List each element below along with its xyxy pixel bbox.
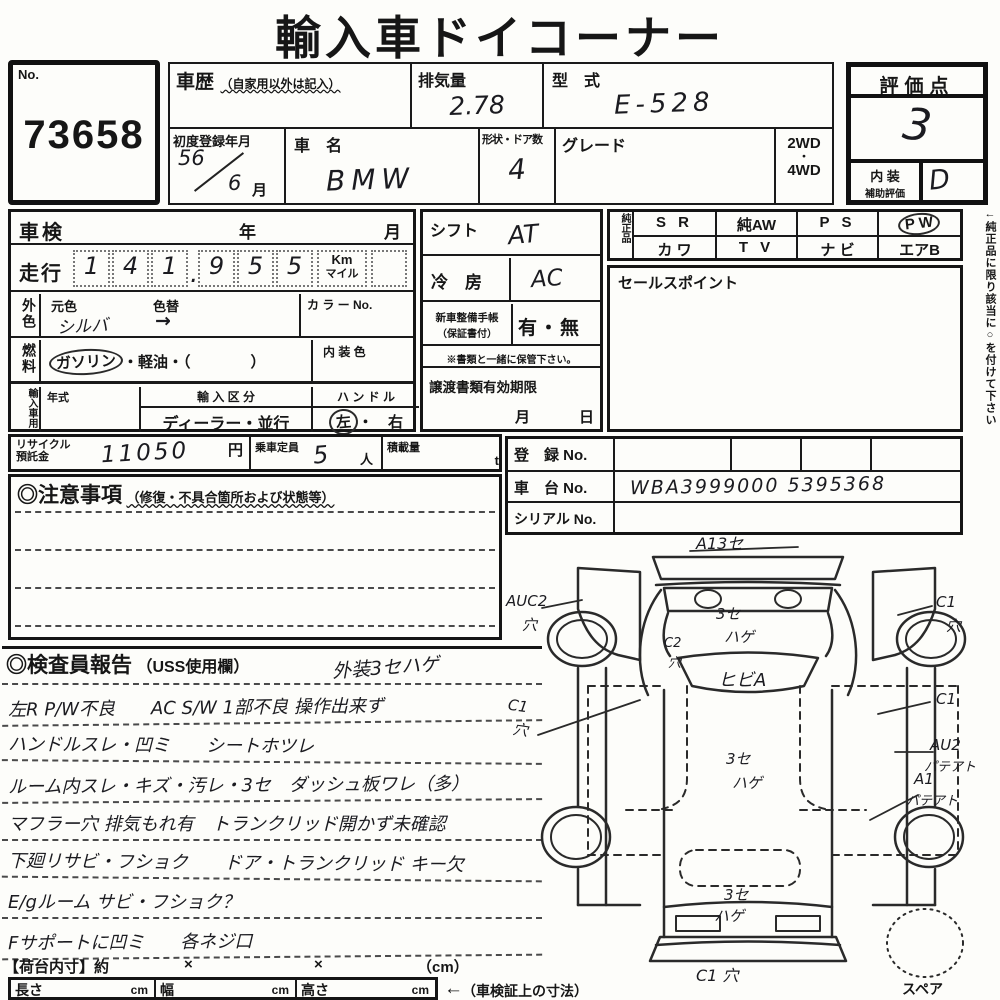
original-color-value: シルバ bbox=[56, 311, 108, 339]
chassis-no-label: 車 台 No. bbox=[514, 477, 587, 498]
spare-tire-circle bbox=[887, 909, 963, 977]
interior-rating-label: 内 装 補助評価 bbox=[851, 163, 923, 200]
displacement-value: 2.78 bbox=[412, 89, 543, 123]
page-title: 輸入車ドイコーナー bbox=[0, 2, 1000, 68]
color-no-divider bbox=[299, 294, 301, 336]
length-unit: cm bbox=[131, 983, 148, 997]
diagram-note: 3セ bbox=[716, 603, 741, 624]
diagram-note: C1 bbox=[936, 593, 956, 611]
chassis-no-value: WBA3999000 5395368 bbox=[630, 473, 886, 499]
lot-number-box: No. 73658 bbox=[8, 60, 160, 205]
exterior-color-side-label: 外色 bbox=[11, 294, 41, 336]
fuel-options: ガソリン・軽油・（ ） bbox=[49, 349, 266, 375]
auction-sheet: 輸入車ドイコーナー No. 73658 車歴 （自家用以外は記入） 排気量 2.… bbox=[0, 0, 1000, 1000]
diagram-note: 穴 bbox=[668, 652, 681, 671]
displacement-cell: 排気量 2.78 bbox=[410, 62, 544, 129]
part-pw: P W bbox=[877, 212, 960, 235]
mileage-label: 走行 bbox=[19, 257, 63, 286]
transfer-docs-row: 譲渡書類有効期限 月 日 bbox=[423, 370, 600, 432]
shaken-month-label: 月 bbox=[384, 218, 401, 243]
registration-label-divider bbox=[613, 439, 615, 470]
registration-no-label: 登 録 No. bbox=[514, 444, 587, 465]
ac-row: 冷 房 AC bbox=[423, 258, 600, 302]
cargo-dimensions-line: 【荷台内寸】約 × × （cm） bbox=[2, 956, 472, 976]
shift-value: AT bbox=[507, 219, 540, 251]
lot-number-value: 73658 bbox=[13, 113, 155, 158]
shift-label: シフト bbox=[430, 217, 478, 241]
report-subtitle: （USS使用欄） bbox=[136, 659, 249, 676]
recycle-row: リサイクル 預託金 11050 円 乗車定員 5 人 積載量 t bbox=[8, 434, 502, 472]
interior-rating-value: D bbox=[928, 160, 985, 196]
history-note: （自家用以外は記入） bbox=[220, 77, 340, 91]
rear-window bbox=[680, 850, 800, 886]
cautions-subtitle: （修復・不具合箇所および状態等） bbox=[126, 490, 334, 505]
diagram-note: ハゲ bbox=[732, 772, 762, 793]
mileage-digit: 1 bbox=[73, 250, 110, 287]
handle-left-selected: 左 bbox=[328, 408, 359, 436]
make-cell: 車 名 BMW bbox=[284, 127, 480, 205]
first-reg-month-unit: 月 bbox=[252, 179, 267, 200]
first-reg-year: 56 bbox=[178, 146, 205, 170]
front-bumper bbox=[653, 557, 843, 579]
interior-color-divider bbox=[311, 340, 313, 381]
displacement-label: 排気量 bbox=[418, 67, 542, 91]
color-change-value: → bbox=[155, 310, 171, 332]
unit-mile-label: マイル bbox=[319, 268, 365, 280]
service-book-row: 新車整備手帳 （保証書付） 有・無 bbox=[423, 304, 600, 346]
part-ps: P S bbox=[796, 212, 877, 235]
caution-line bbox=[15, 625, 495, 627]
shift-row: シフト AT bbox=[423, 212, 600, 256]
cargo-times-2: × bbox=[314, 956, 323, 973]
interior-rating-row: 内 装 補助評価 D bbox=[851, 159, 983, 200]
report-line: 左R P/W不良 AC S/W 1部不良 操作出来ず bbox=[2, 682, 542, 727]
report-exterior-note: 外装3セハゲ bbox=[331, 649, 440, 683]
part-sr: S R bbox=[634, 212, 715, 235]
registration-divider-3 bbox=[870, 439, 872, 470]
report-line: Fサポートに凹ミ 各ネジ口 bbox=[2, 917, 542, 961]
make-label: 車 名 bbox=[294, 132, 478, 156]
chassis-label-divider bbox=[613, 472, 615, 501]
header-table: 車歴 （自家用以外は記入） 排気量 2.78 型 式 E-528 初度登録年月 … bbox=[168, 62, 834, 205]
transfer-day-label: 日 bbox=[579, 406, 594, 427]
caution-line bbox=[15, 587, 495, 589]
model-value: E-528 bbox=[614, 83, 833, 121]
handle-right-option: ・ 右 bbox=[358, 414, 403, 431]
mileage-digit: 5 bbox=[237, 250, 274, 287]
part-pw-circled: P W bbox=[897, 211, 941, 237]
diagram-note: ハゲ bbox=[724, 626, 754, 647]
diagram-note: ヒビA bbox=[718, 666, 766, 692]
part-aw: 純AW bbox=[715, 212, 796, 235]
transfer-month-label: 月 bbox=[515, 406, 530, 427]
diagram-note: AU2 bbox=[930, 736, 961, 754]
diagram-note: C1 bbox=[936, 690, 956, 708]
rating-box: 評価点 3 内 装 補助評価 D bbox=[846, 62, 988, 205]
capacity-unit: 人 bbox=[360, 449, 373, 468]
cargo-times-1: × bbox=[184, 956, 193, 973]
report-line: 下廻リサビ・フショク ドア・トランクリッド キー欠 bbox=[2, 839, 542, 883]
width-label: 幅 bbox=[160, 982, 174, 998]
inspector-report: ◎検査員報告 （USS使用欄） 外装3セハゲ 左R P/W不良 AC S/W 1… bbox=[2, 646, 542, 956]
mileage-digit: 4 bbox=[112, 250, 149, 287]
first-registration-cell: 初度登録年月 56 6 月 bbox=[168, 127, 286, 205]
shaken-row: 車検 年 月 bbox=[11, 212, 413, 245]
height-cell: 高さ cm bbox=[295, 980, 435, 997]
report-line: ルーム内スレ・キズ・汚レ・3セ ダッシュ板ワレ（多） bbox=[2, 761, 542, 804]
load-cell: 積載量 t bbox=[383, 437, 505, 469]
diagram-note: A1 bbox=[914, 770, 934, 788]
diagram-note: AUC2 bbox=[506, 592, 547, 610]
diagram-note: ハゲ bbox=[714, 905, 744, 926]
service-book-label-2: （保証書付） bbox=[423, 325, 511, 340]
import-class-value: ディーラー・並行 bbox=[141, 410, 311, 434]
diagram-note: C1 bbox=[507, 696, 529, 717]
serial-no-row: シリアル No. bbox=[508, 501, 960, 532]
lot-number-label: No. bbox=[18, 67, 39, 82]
grade-cell: グレード bbox=[554, 127, 776, 205]
width-cell: 幅 cm bbox=[154, 980, 295, 997]
registration-divider-1 bbox=[730, 439, 732, 470]
equipment-block: シフト AT 冷 房 AC 新車整備手帳 （保証書付） 有・無 ※書類と一緒に保… bbox=[420, 209, 603, 432]
doors-cell: 形状・ドア数 4 bbox=[478, 127, 556, 205]
recycle-fee-unit: 円 bbox=[228, 439, 243, 460]
height-unit: cm bbox=[412, 983, 429, 997]
serial-no-label: シリアル No. bbox=[514, 509, 596, 529]
recycle-fee-cell: リサイクル 預託金 11050 円 bbox=[11, 437, 251, 469]
doors-value: 4 bbox=[479, 150, 555, 188]
service-book-label: 新車整備手帳 （保証書付） bbox=[423, 304, 513, 344]
chassis-no-row: 車 台 No. WBA3999000 5395368 bbox=[508, 470, 960, 501]
unit-km-label: Km bbox=[319, 252, 365, 268]
rating-score: 3 bbox=[848, 89, 987, 165]
length-cell: 長さ cm bbox=[11, 980, 154, 997]
report-header: ◎検査員報告 （USS使用欄） 外装3セハゲ bbox=[2, 649, 542, 685]
report-line: E/gルーム サビ・フショク？ bbox=[2, 880, 542, 919]
registration-divider-2 bbox=[800, 439, 802, 470]
hood-edge-right bbox=[826, 613, 832, 656]
mileage-row: 走行 1 4 1 . 9 5 5 Km マイル bbox=[11, 247, 413, 292]
headlight-right bbox=[775, 590, 801, 608]
report-line: ハンドルスレ・凹ミ シートホツレ bbox=[2, 722, 542, 765]
width-unit: cm bbox=[272, 983, 289, 997]
diagram-note: C2 bbox=[664, 636, 681, 651]
caution-line bbox=[15, 511, 495, 513]
drive-2wd: 2WD bbox=[776, 135, 832, 152]
history-cell: 車歴 （自家用以外は記入） bbox=[168, 62, 412, 129]
part-airbag: エアB bbox=[877, 235, 960, 258]
diagram-note: 穴 bbox=[512, 718, 530, 741]
drive-4wd: 4WD bbox=[776, 162, 832, 179]
capacity-value: 5 bbox=[312, 440, 330, 469]
left-front-door bbox=[578, 568, 640, 660]
genuine-parts-side-label: 純正品 bbox=[610, 212, 634, 258]
ac-label: 冷 房 bbox=[431, 268, 482, 293]
registration-no-row: 登 録 No. bbox=[508, 439, 960, 470]
documents-note: ※書類と一緒に保管下さい。 bbox=[423, 348, 600, 368]
import-row: 輸入車用 年式 輸 入 区 分 ディーラー・並行 ハ ン ド ル 左・ 右 bbox=[11, 387, 413, 432]
color-no-label: カ ラ ー No. bbox=[307, 296, 372, 313]
height-label: 高さ bbox=[301, 982, 329, 998]
fuel-row: 燃料 ガソリン・軽油・（ ） 内 装 色 bbox=[11, 340, 413, 384]
cautions-title: ◎注意事項 bbox=[17, 479, 122, 509]
cargo-unit: （cm） bbox=[417, 956, 469, 977]
length-label: 長さ bbox=[15, 982, 43, 998]
sales-point-box: セールスポイント bbox=[607, 265, 963, 432]
mileage-unit-box: Km マイル bbox=[317, 250, 367, 287]
capacity-label: 乗車定員 bbox=[255, 439, 299, 455]
genuine-parts-table: 純正品 S R 純AW P S P W カ ワ T V ナ ビ エアB bbox=[607, 209, 963, 261]
diagram-note: 穴 bbox=[522, 614, 537, 635]
diagram-note: 3セ bbox=[724, 884, 749, 905]
history-label: 車歴 bbox=[176, 67, 214, 94]
fender-right bbox=[835, 590, 856, 695]
mileage-extra-box bbox=[371, 250, 407, 287]
report-title: ◎検査員報告 bbox=[6, 654, 132, 677]
serial-label-divider bbox=[613, 503, 615, 532]
handle-label: ハ ン ド ル bbox=[313, 387, 419, 408]
make-value: BMW bbox=[325, 159, 478, 197]
import-class-label: 輸 入 区 分 bbox=[141, 387, 311, 408]
registration-block: 登 録 No. 車 台 No. WBA3999000 5395368 シリアル … bbox=[505, 436, 963, 535]
model-cell: 型 式 E-528 bbox=[542, 62, 834, 129]
drive-dot: ・ bbox=[776, 152, 832, 162]
service-book-label-1: 新車整備手帳 bbox=[423, 310, 511, 325]
load-unit: t bbox=[495, 453, 499, 468]
year-type-label: 年式 bbox=[47, 389, 69, 405]
ac-value: AC bbox=[530, 265, 564, 293]
service-book-value: 有・無 bbox=[518, 304, 600, 340]
diagram-note: パテアト bbox=[906, 790, 958, 809]
part-tv: T V bbox=[715, 235, 796, 258]
import-side-label: 輸入車用 bbox=[11, 387, 41, 432]
interior-color-label: 内 装 色 bbox=[323, 343, 366, 360]
diagram-note: 穴 bbox=[946, 615, 961, 636]
vehicle-inspection-block: 車検 年 月 走行 1 4 1 . 9 5 5 Km マイル 外色 元色 色替 … bbox=[8, 209, 416, 432]
part-kawa: カ ワ bbox=[634, 235, 715, 258]
import-class-cell: 輸 入 区 分 ディーラー・並行 bbox=[139, 387, 311, 432]
fuel-side-label: 燃料 bbox=[11, 340, 41, 381]
doors-label: 形状・ドア数 bbox=[482, 131, 554, 147]
drive-cell: 2WD ・ 4WD bbox=[774, 127, 834, 205]
mileage-digit: 5 bbox=[276, 250, 313, 287]
load-label: 積載量 bbox=[387, 439, 420, 455]
fuel-selected-gasoline: ガソリン bbox=[48, 347, 123, 377]
front-panel bbox=[664, 588, 832, 611]
part-navi: ナ ビ bbox=[796, 235, 877, 258]
recycle-fee-value: 11050 bbox=[100, 438, 189, 469]
caution-line bbox=[15, 549, 495, 551]
cautions-box: ◎注意事項 （修復・不具合箇所および状態等） bbox=[8, 474, 502, 640]
diagram-note: A13セ bbox=[696, 530, 743, 554]
diagram-note: 3セ bbox=[726, 748, 751, 769]
transfer-docs-label: 譲渡書類有効期限 bbox=[429, 376, 600, 396]
mileage-digit: 9 bbox=[198, 250, 235, 287]
taillight-right bbox=[776, 916, 820, 931]
mileage-digit: 1 bbox=[151, 250, 188, 287]
ac-divider bbox=[509, 258, 511, 300]
exterior-color-row: 外色 元色 色替 シルバ → カ ラ ー No. bbox=[11, 294, 413, 338]
shaken-year-label: 年 bbox=[239, 218, 256, 243]
cargo-label: 【荷台内寸】約 bbox=[4, 956, 109, 977]
handle-cell: ハ ン ド ル 左・ 右 bbox=[311, 387, 419, 432]
shaken-label: 車検 bbox=[19, 216, 65, 245]
report-line: マフラー穴 排気もれ有 トランクリッド開かず未確認 bbox=[2, 802, 542, 841]
interior-label-1: 内 装 bbox=[851, 166, 919, 185]
first-reg-month: 6 bbox=[228, 171, 241, 195]
diagram-note: C1 穴 bbox=[696, 962, 738, 986]
fender-left bbox=[640, 590, 661, 695]
dimensions-row: 長さ cm 幅 cm 高さ cm bbox=[8, 977, 438, 1000]
grade-label: グレード bbox=[562, 132, 774, 156]
ref-arrow: ← bbox=[444, 978, 463, 1000]
interior-label-2: 補助評価 bbox=[851, 185, 919, 200]
sales-point-label: セールスポイント bbox=[618, 272, 960, 293]
capacity-cell: 乗車定員 5 人 bbox=[251, 437, 383, 469]
fuel-options-rest: ・軽油・（ ） bbox=[123, 354, 266, 371]
